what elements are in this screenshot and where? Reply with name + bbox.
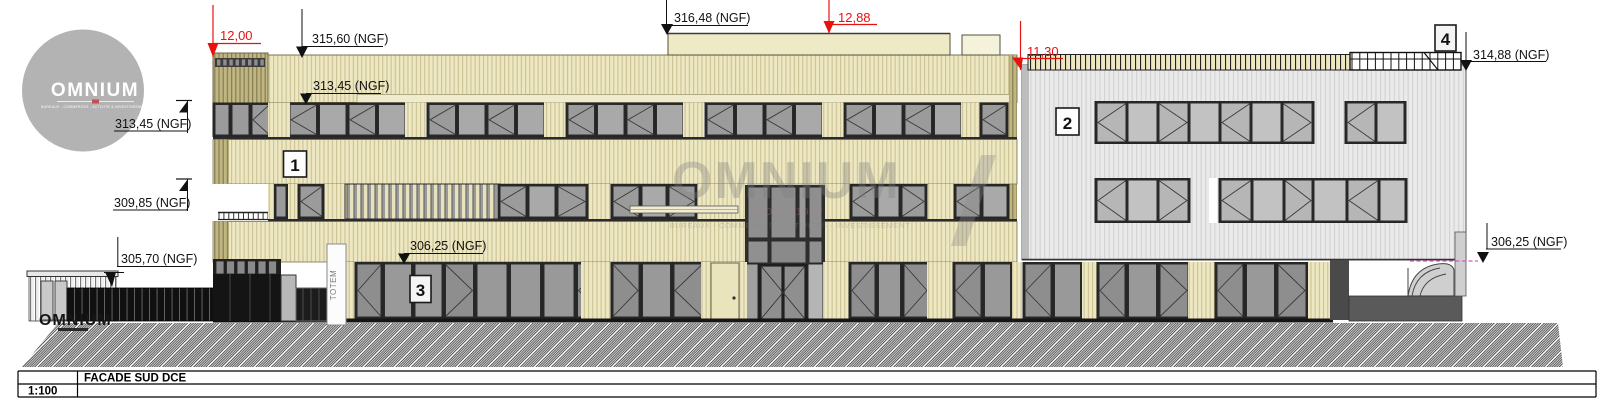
- svg-text:2: 2: [1063, 114, 1072, 133]
- svg-text:OMNIUM: OMNIUM: [39, 312, 112, 329]
- svg-text:309,85 (NGF): 309,85 (NGF): [114, 196, 190, 210]
- svg-text:3: 3: [416, 281, 425, 300]
- svg-text:FACADE SUD DCE: FACADE SUD DCE: [84, 373, 187, 385]
- svg-text:305,70 (NGF): 305,70 (NGF): [121, 252, 197, 266]
- svg-text:313,45 (NGF): 313,45 (NGF): [115, 117, 191, 131]
- svg-text:1:100: 1:100: [28, 386, 57, 398]
- svg-text:4: 4: [1441, 30, 1451, 49]
- svg-text:12,88: 12,88: [838, 10, 871, 25]
- svg-text:BUREAUX - COMMERCES - ACTIVITE: BUREAUX - COMMERCES - ACTIVITES - INVEST…: [669, 221, 910, 230]
- svg-text:LYON - 1947: LYON - 1947: [750, 207, 824, 218]
- svg-text:314,88 (NGF): 314,88 (NGF): [1473, 48, 1549, 62]
- svg-text:12,00: 12,00: [220, 28, 253, 43]
- svg-text:315,60 (NGF): 315,60 (NGF): [312, 32, 388, 46]
- svg-text:BUREAUX - COMMERCES - ACTIVITE: BUREAUX - COMMERCES - ACTIVITE & INVESTI…: [41, 105, 149, 109]
- svg-text:OMNIUM: OMNIUM: [51, 80, 139, 101]
- svg-text:313,45 (NGF): 313,45 (NGF): [313, 79, 389, 93]
- svg-text:306,25 (NGF): 306,25 (NGF): [1491, 235, 1567, 249]
- svg-text:1: 1: [290, 156, 299, 175]
- svg-text:306,25 (NGF): 306,25 (NGF): [410, 239, 486, 253]
- svg-text:OMNIUM: OMNIUM: [672, 152, 901, 210]
- svg-text:11,30: 11,30: [1027, 44, 1059, 59]
- svg-text:TOTEM: TOTEM: [329, 270, 338, 300]
- svg-text:316,48 (NGF): 316,48 (NGF): [674, 11, 750, 25]
